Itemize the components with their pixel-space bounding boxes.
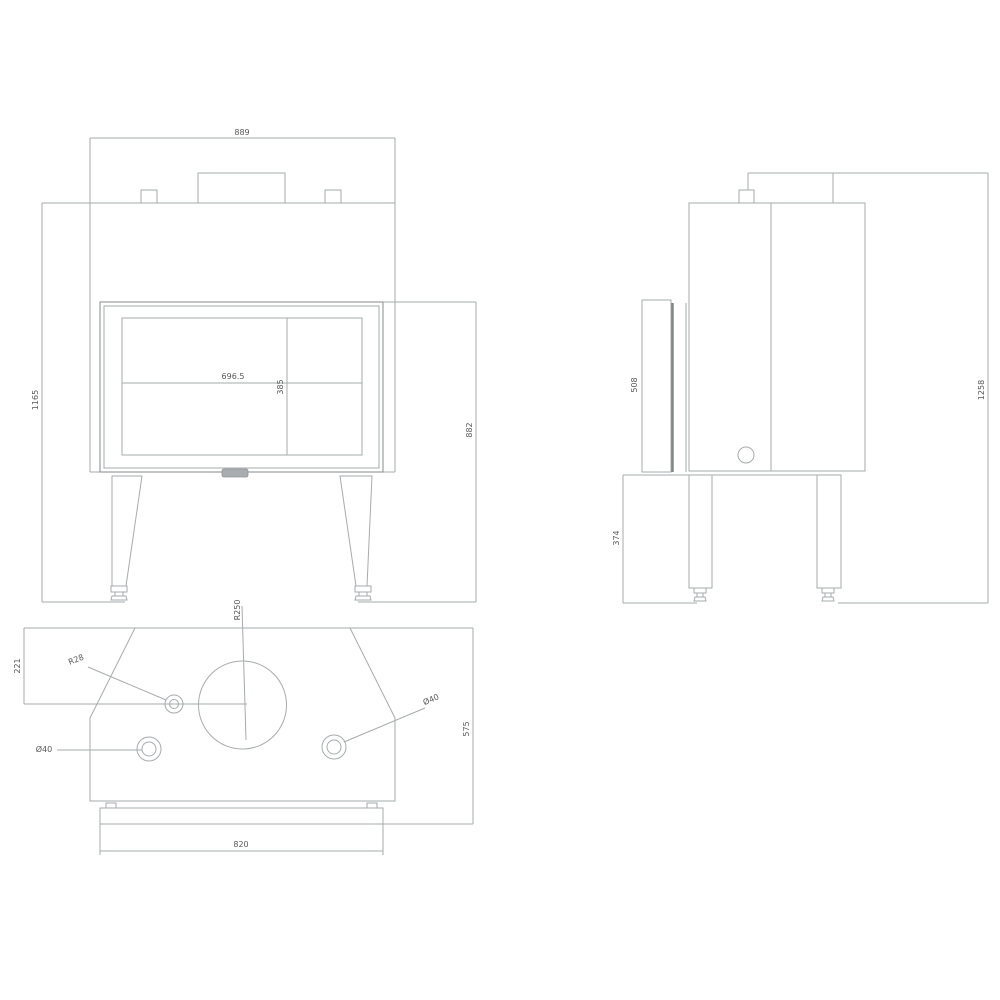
label-r250: R250 — [233, 600, 242, 621]
side-plug-circle — [738, 447, 754, 463]
dim-882: 882 — [465, 422, 474, 437]
connector-stub-left — [141, 190, 157, 203]
dim-575: 575 — [462, 721, 471, 736]
plan-body-outline — [90, 628, 395, 801]
leader-r250 — [242, 606, 246, 740]
connector-stub-right — [325, 190, 341, 203]
side-foot-front — [694, 588, 706, 601]
door-handle — [222, 469, 248, 477]
plan-view: 221 R250 R28 Ø40 Ø40 575 — [13, 600, 473, 855]
front-foot-left — [111, 586, 127, 600]
side-leg-back — [817, 475, 841, 588]
flue-collar-front — [198, 173, 285, 203]
dim-385: 385 — [276, 379, 285, 394]
label-dia40-right: Ø40 — [421, 691, 440, 707]
plan-foot-tab-left — [106, 803, 116, 808]
hole-dia40-right-inner — [327, 740, 341, 754]
dim-508: 508 — [630, 377, 639, 392]
dim-820: 820 — [233, 840, 248, 849]
front-leg-left — [112, 476, 142, 586]
door-frame-inner — [104, 306, 379, 468]
technical-drawing: 889 1165 696.5 385 882 — [0, 0, 1000, 1000]
side-foot-back — [822, 588, 834, 601]
flue-circle — [199, 661, 287, 749]
side-body — [689, 203, 865, 471]
leader-dia40-right — [344, 708, 425, 742]
dim-889: 889 — [234, 128, 249, 137]
plan-foot-tab-right — [367, 803, 377, 808]
dim-1165: 1165 — [31, 390, 40, 410]
plan-base-plate — [100, 808, 383, 824]
front-view: 889 1165 696.5 385 882 — [31, 128, 476, 602]
dim-221: 221 — [13, 658, 22, 673]
dim-1258: 1258 — [977, 380, 986, 400]
flue-stub-side — [739, 190, 754, 203]
label-dia40-left: Ø40 — [36, 744, 52, 754]
drawing-canvas: 889 1165 696.5 385 882 — [0, 0, 1000, 1000]
leader-r28 — [88, 667, 166, 700]
hole-dia40-left-inner — [142, 742, 156, 756]
dim-696-5: 696.5 — [222, 372, 245, 381]
hole-dia40-left-outer — [137, 737, 161, 761]
front-foot-right — [355, 586, 371, 600]
side-door-panel — [642, 300, 671, 472]
hole-dia40-right-outer — [322, 735, 346, 759]
side-view: 508 1258 374 — [612, 173, 988, 603]
front-leg-right — [340, 476, 372, 586]
door-glass — [122, 318, 362, 455]
side-leg-front — [689, 475, 712, 588]
door-frame-outer — [100, 302, 383, 472]
label-r28: R28 — [67, 653, 85, 667]
dim-374: 374 — [612, 530, 621, 545]
